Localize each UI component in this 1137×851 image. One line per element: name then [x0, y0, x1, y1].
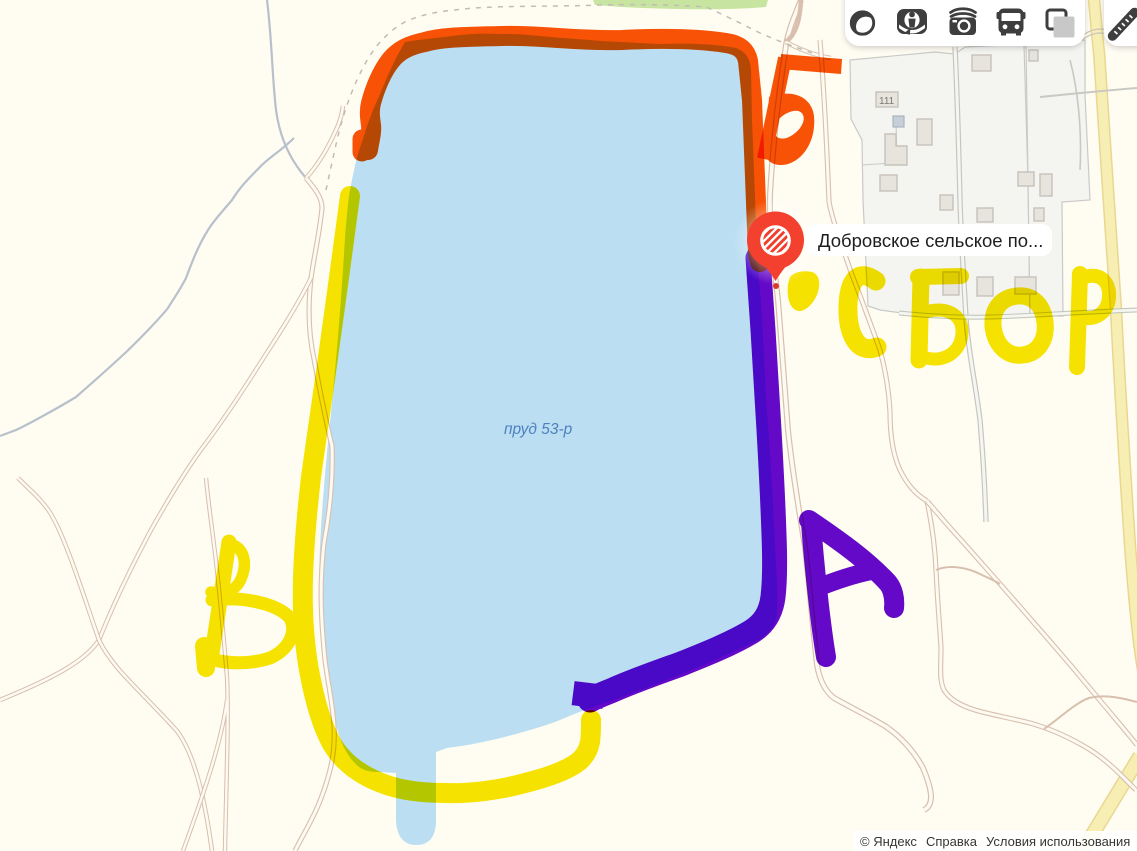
svg-text:Справка: Справка	[926, 834, 978, 849]
svg-text:Условия использования: Условия использования	[986, 834, 1130, 849]
svg-text:© Яндекс: © Яндекс	[860, 834, 917, 849]
